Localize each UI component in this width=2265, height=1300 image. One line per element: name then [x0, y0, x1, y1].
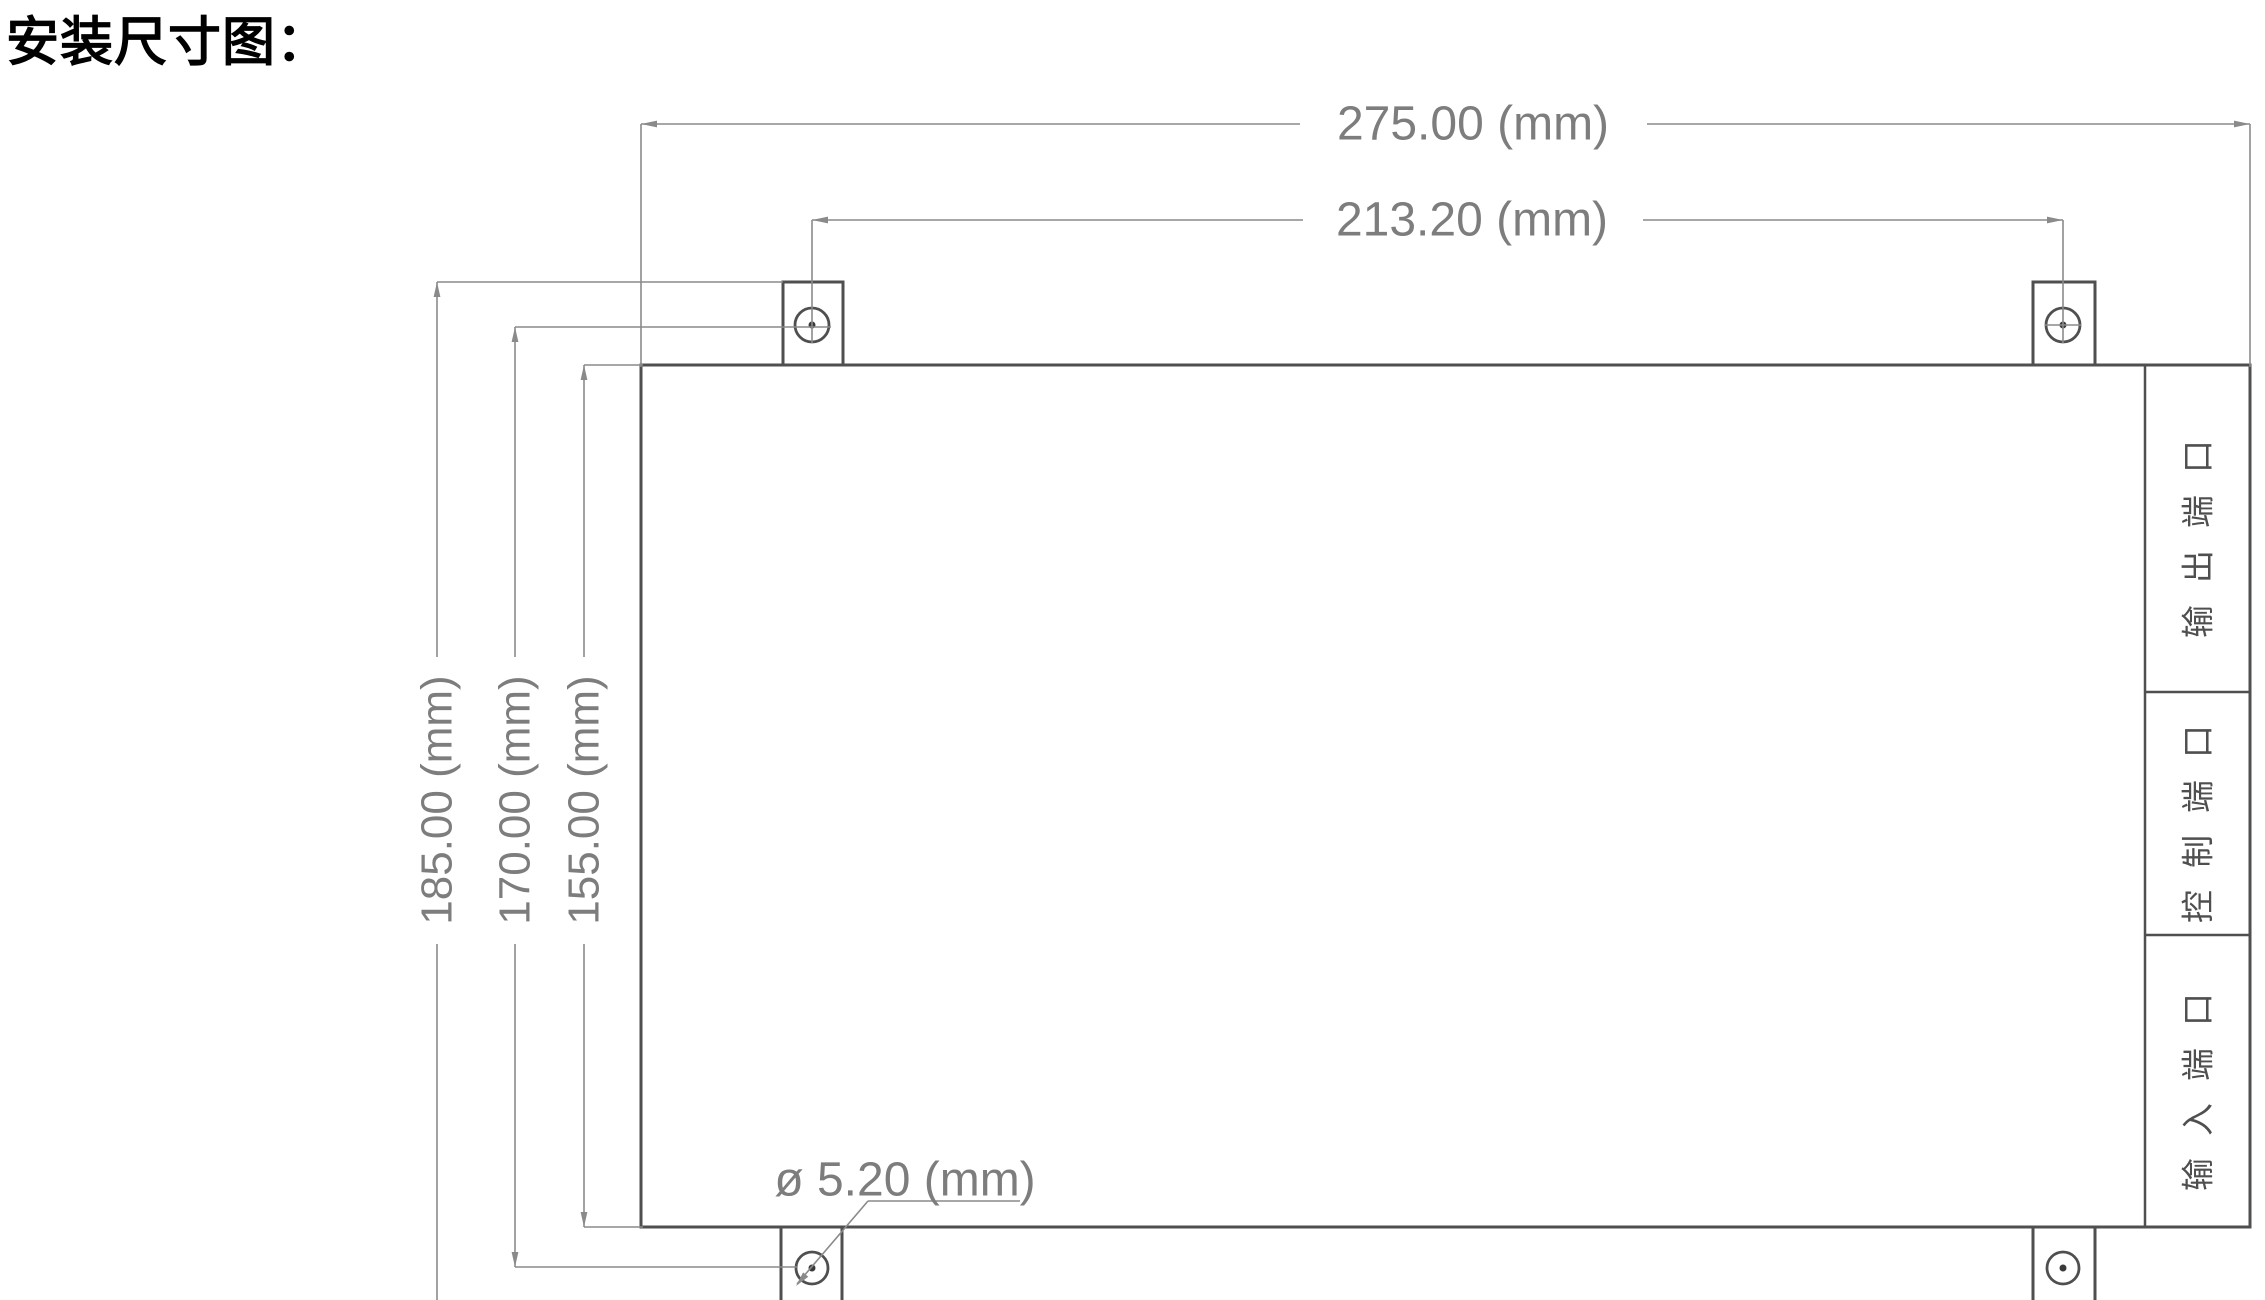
installation-dimension-page: 安装尺寸图： 275.00 (mm) [0, 0, 2265, 1300]
dim-275-arrow-left [641, 121, 657, 128]
dim-155-arrow-bottom [581, 1212, 588, 1227]
page-title: 安装尺寸图： [6, 0, 330, 76]
dim-155-arrow-top [581, 365, 588, 380]
dim-275-arrow-right [2234, 121, 2250, 128]
dim-170-label: 170.00 (mm) [491, 675, 540, 924]
dim-185-label: 185.00 (mm) [413, 675, 462, 924]
leader-diagonal [797, 1201, 868, 1284]
dim-hole-diameter-label: ø 5.20 (mm) [774, 1154, 1035, 1207]
dim-213-arrow-left [812, 217, 828, 224]
port-label-output: 输出端口 [2180, 418, 2217, 638]
dim-213-arrow-right [2047, 217, 2063, 224]
hole-center-dot-bottom-right [2060, 1265, 2067, 1272]
dim-185-arrow-top [434, 282, 441, 297]
dim-170-arrow-bottom [512, 1252, 519, 1267]
port-label-input: 输入端口 [2180, 971, 2217, 1191]
mounting-tab-bottom-left [781, 1227, 842, 1300]
dim-170-arrow-top [512, 327, 519, 342]
dim-155-label: 155.00 (mm) [560, 675, 609, 924]
port-label-control: 控制端口 [2180, 703, 2217, 923]
dim-275-label: 275.00 (mm) [1337, 98, 1609, 151]
device-dimension-drawing: 275.00 (mm) 213.20 (mm) 185.00 (mm) 170.… [0, 0, 2265, 1300]
device-body-outline [641, 365, 2250, 1227]
dim-213-label: 213.20 (mm) [1336, 194, 1608, 247]
mounting-tab-bottom-right [2033, 1227, 2095, 1300]
